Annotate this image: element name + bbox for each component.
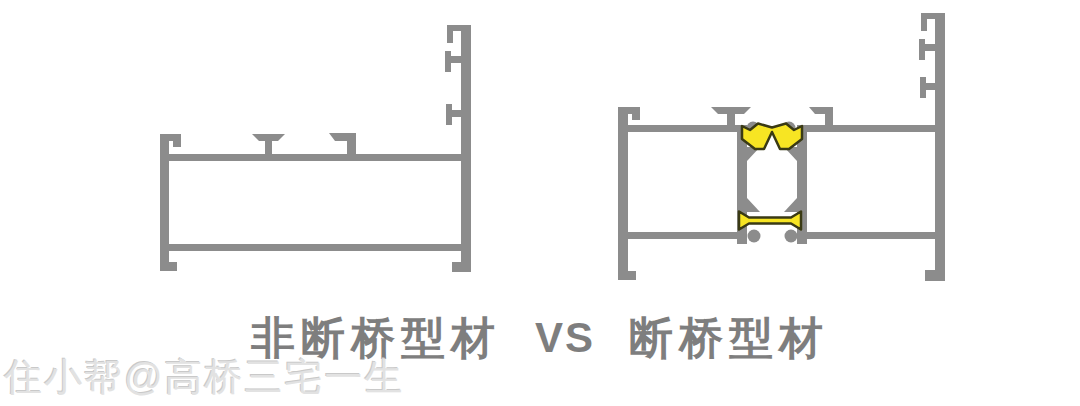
watermark: 住小帮@高桥三宅一生 — [4, 352, 405, 402]
caption-right-label: 断桥型材 — [629, 316, 829, 360]
clip-knob — [748, 230, 761, 243]
thermal-break-profile — [618, 13, 945, 281]
caption-vs-separator: VS — [535, 317, 595, 359]
clip-knob — [785, 230, 798, 243]
non-thermal-break-profile — [160, 25, 471, 272]
watermark-text: 住小帮@高桥三宅一生 — [4, 358, 405, 396]
thermal-strip-bottom — [739, 212, 801, 230]
profiles-drawing — [0, 0, 1080, 300]
profile-comparison-diagram: 非断桥型材 VS 断桥型材 住小帮@高桥三宅一生 — [0, 0, 1080, 406]
